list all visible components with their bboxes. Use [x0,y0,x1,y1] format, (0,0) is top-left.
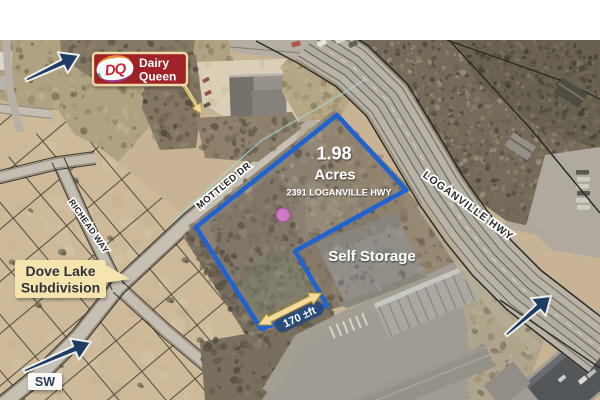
svg-text:Acres: Acres [314,168,355,184]
svg-text:SW: SW [35,375,55,389]
svg-text:1.98: 1.98 [316,144,351,164]
svg-text:Subdivision: Subdivision [21,280,100,296]
svg-text:Self Storage: Self Storage [328,248,416,265]
svg-text:DQ: DQ [104,60,127,79]
svg-text:2391 LOGANVILLE HWY: 2391 LOGANVILLE HWY [286,188,391,198]
svg-text:Queen: Queen [139,70,176,84]
svg-text:Dairy: Dairy [139,56,169,70]
svg-text:Dove Lake: Dove Lake [25,263,95,279]
